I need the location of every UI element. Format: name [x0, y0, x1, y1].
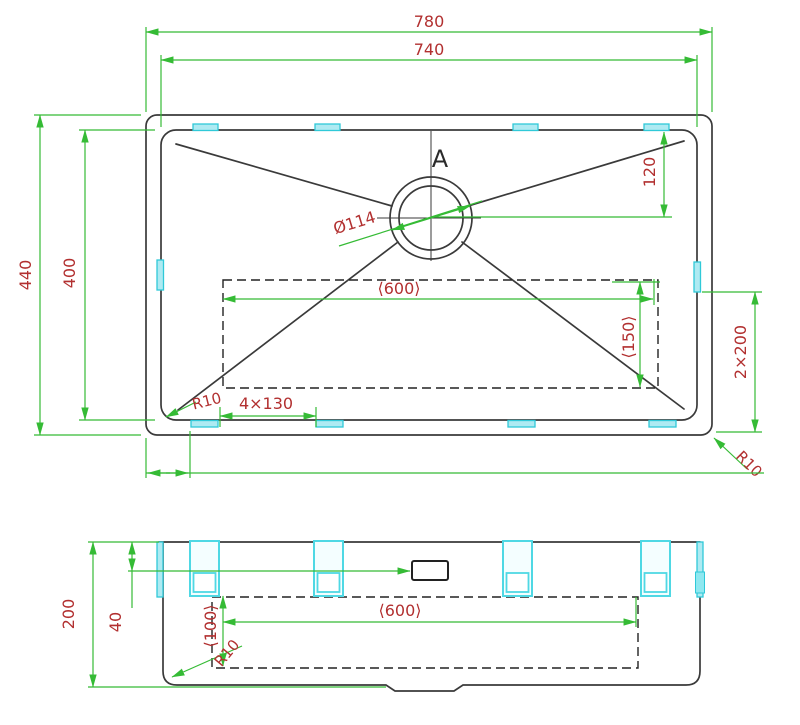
dim-label-side-clip-spacing: 2×200: [731, 325, 750, 379]
mounting-clip: [191, 421, 218, 428]
mounting-clip: [649, 421, 676, 428]
top-view: A: [146, 115, 712, 435]
dim-label-clip-pitch: 4×130: [239, 394, 293, 413]
mounting-clip: [644, 124, 669, 131]
dim-label-400: 400: [60, 258, 79, 289]
dim-label-base-width: ⟨600⟩: [377, 279, 420, 298]
dim-label-120: 120: [640, 157, 659, 188]
overflow-knockout: [412, 561, 448, 580]
mounting-bracket-foot: [194, 573, 216, 592]
dim-label-440: 440: [16, 260, 35, 291]
side-view: [157, 541, 705, 691]
dim-arrow: [431, 206, 470, 218]
dim-label-740: 740: [414, 40, 445, 59]
mounting-clip: [508, 421, 535, 428]
side-view-dimensions: 200 40 ⟨600⟩ ⟨100⟩ R10: [59, 542, 636, 687]
bowl-slope-line: [178, 242, 398, 410]
dim-label-flange-offset: 40: [106, 612, 125, 632]
mounting-bracket-foot: [318, 573, 340, 592]
bowl-base-hidden-outline: [223, 280, 658, 388]
dim-label-780: 780: [414, 12, 445, 31]
sink-technical-drawing: A 780 740 440: [0, 0, 800, 725]
dim-label-base-offset: ⟨100⟩: [201, 604, 220, 647]
sink-bowl-rim: [161, 130, 697, 420]
dim-label-base-depth: ⟨150⟩: [619, 315, 638, 358]
mounting-bracket-foot: [507, 573, 529, 592]
dim-label-inner-radius: R10: [190, 389, 223, 414]
mounting-brackets-side-view: [157, 541, 705, 597]
dim-arrow: [392, 218, 431, 230]
section-marker-a: A: [432, 145, 449, 173]
edge-clip: [157, 542, 163, 597]
bowl-slope-line: [462, 242, 684, 409]
technical-drawing-page: A 780 740 440: [0, 0, 800, 725]
mounting-clip: [193, 124, 218, 131]
mounting-clip: [157, 260, 164, 290]
bowl-base-hidden-outline: [212, 597, 638, 668]
bowl-slope-line: [176, 144, 392, 206]
mounting-clip: [316, 421, 343, 428]
dim-label-base-width: ⟨600⟩: [378, 601, 421, 620]
mounting-clip: [694, 262, 701, 292]
dim-label-outer-radius: R10: [732, 447, 766, 481]
edge-clip-foot: [696, 572, 705, 593]
mounting-clips-top-view: [157, 124, 701, 427]
mounting-clip: [513, 124, 538, 131]
dim-label-height: 200: [59, 599, 78, 630]
sink-outer-flange: [146, 115, 712, 435]
mounting-clip: [315, 124, 340, 131]
dim-label-drain-diameter: Ø114: [331, 207, 378, 238]
mounting-bracket-foot: [645, 573, 667, 592]
